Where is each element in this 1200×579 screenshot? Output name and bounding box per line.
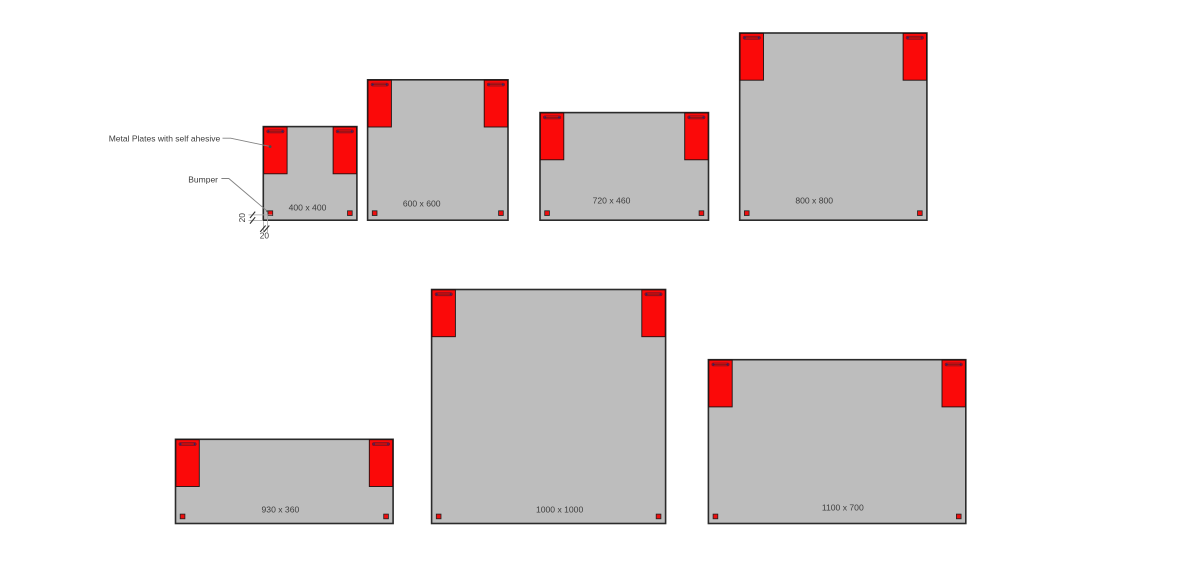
svg-text:20: 20 — [237, 213, 247, 223]
svg-text:1100 x 700: 1100 x 700 — [822, 502, 864, 512]
svg-text:Metal Plates with self ahesive: Metal Plates with self ahesive — [109, 134, 221, 144]
svg-text:600 x 600: 600 x 600 — [403, 198, 441, 208]
svg-text:930 x 360: 930 x 360 — [262, 505, 300, 515]
svg-text:720 x 460: 720 x 460 — [593, 196, 631, 206]
svg-text:20: 20 — [260, 230, 270, 240]
svg-text:400 x 400: 400 x 400 — [289, 203, 327, 213]
svg-text:800 x 800: 800 x 800 — [795, 195, 833, 205]
svg-text:Bumper: Bumper — [188, 174, 218, 184]
svg-text:1000 x 1000: 1000 x 1000 — [536, 505, 584, 515]
